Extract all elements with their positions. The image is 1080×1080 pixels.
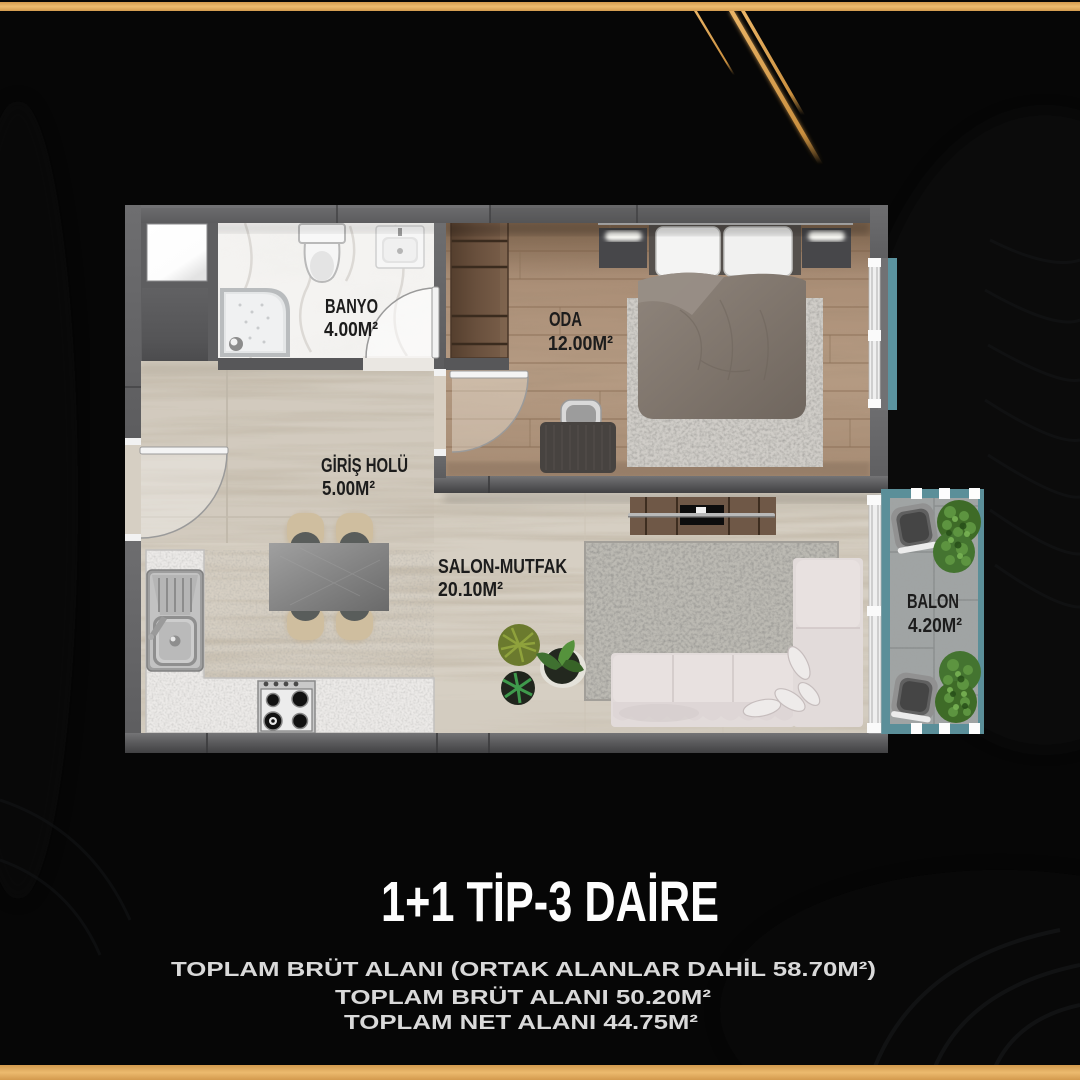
svg-text:GİRİŞ HOLÜ: GİRİŞ HOLÜ: [321, 454, 408, 477]
svg-text:12.00M²: 12.00M²: [548, 333, 613, 355]
svg-text:BALON: BALON: [907, 591, 959, 613]
svg-text:BANYO: BANYO: [325, 296, 378, 318]
svg-text:TOPLAM BRÜT ALANI (ORTAK ALANL: TOPLAM BRÜT ALANI (ORTAK ALANLAR DAHİL 5…: [171, 958, 876, 981]
svg-text:4.00M²: 4.00M²: [324, 319, 378, 341]
svg-text:TOPLAM NET ALANI 44.75M²: TOPLAM NET ALANI 44.75M²: [344, 1011, 698, 1034]
svg-text:1+1 TİP-3 DAİRE: 1+1 TİP-3 DAİRE: [381, 870, 719, 934]
svg-text:ODA: ODA: [549, 309, 582, 331]
svg-text:5.00M²: 5.00M²: [322, 478, 375, 500]
svg-text:4.20M²: 4.20M²: [908, 615, 962, 637]
svg-text:SALON-MUTFAK: SALON-MUTFAK: [438, 556, 567, 578]
svg-text:20.10M²: 20.10M²: [438, 579, 503, 601]
svg-text:TOPLAM BRÜT ALANI 50.20M²: TOPLAM BRÜT ALANI 50.20M²: [335, 986, 711, 1009]
